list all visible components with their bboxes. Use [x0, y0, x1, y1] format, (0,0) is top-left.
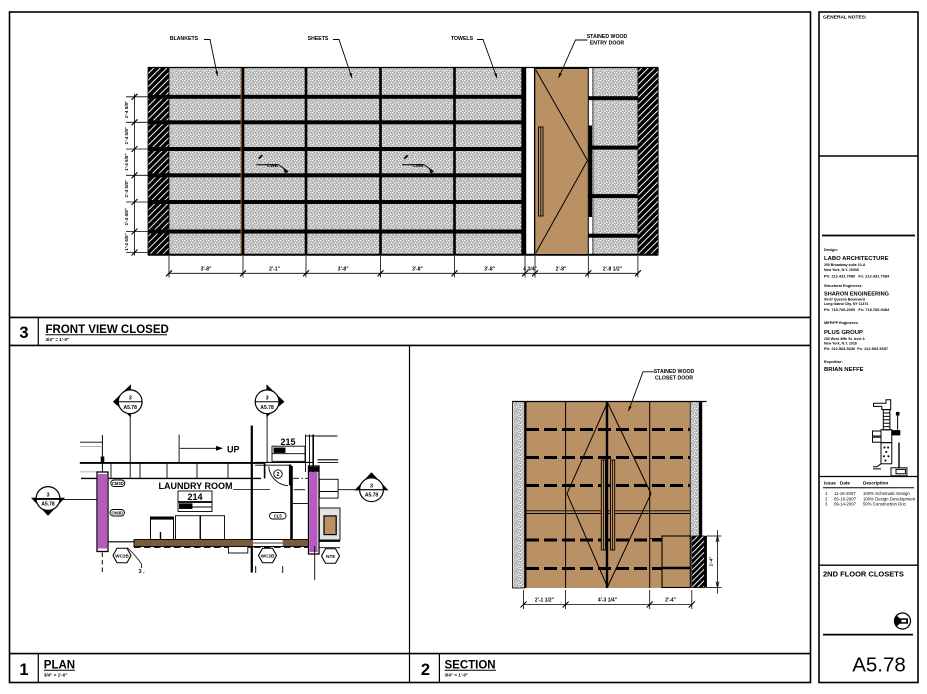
svg-text:CM3D: CM3D [112, 481, 124, 486]
svg-text:Date: Date [840, 481, 850, 486]
svg-text:CWB: CWB [267, 163, 279, 168]
svg-text:3'-8": 3'-8" [484, 267, 495, 273]
svg-text:Issue: Issue [824, 481, 836, 486]
svg-text:Ph: 212.563.5330 Fx: 212.563.: Ph: 212.563.5330 Fx: 212.563.5357 [824, 346, 888, 351]
svg-text:1: 1 [19, 661, 28, 679]
svg-text:4'-3 1/4": 4'-3 1/4" [598, 597, 618, 603]
svg-text:Expeditor:: Expeditor: [824, 360, 843, 364]
svg-text:WC2B: WC2B [261, 553, 275, 558]
svg-text:3: 3 [266, 396, 269, 402]
svg-text:ENTRY DOOR: ENTRY DOOR [590, 41, 625, 47]
svg-text:Ph: 212.431.7080 Fx: 212.431: Ph: 212.431.7080 Fx: 212.431.7084 [824, 274, 890, 279]
svg-text:MEP/FP Engineers:: MEP/FP Engineers: [824, 321, 859, 325]
svg-text:11-16-2007: 11-16-2007 [834, 491, 856, 496]
svg-text:2ND FLOOR CLOSETS: 2ND FLOOR CLOSETS [823, 570, 904, 579]
svg-text:3 .: 3 . [139, 569, 146, 575]
svg-text:3: 3 [19, 324, 28, 342]
svg-text:2'-4": 2'-4" [665, 597, 676, 603]
svg-text:CL5: CL5 [274, 513, 283, 518]
svg-text:2: 2 [421, 661, 430, 679]
svg-text:1'-4 5/8": 1'-4 5/8" [124, 208, 129, 226]
svg-text:3: 3 [129, 396, 132, 402]
svg-text:50% Construction Doc.: 50% Construction Doc. [863, 502, 907, 507]
svg-text:05-15-2007: 05-15-2007 [834, 496, 857, 501]
svg-text:A5.78: A5.78 [41, 502, 55, 508]
svg-text:CWB: CWB [413, 163, 425, 168]
svg-text:Long Island City, NY 11374: Long Island City, NY 11374 [824, 302, 868, 306]
svg-text:SECTION: SECTION [445, 660, 496, 672]
svg-text:SHEETS: SHEETS [308, 36, 329, 42]
svg-text:93-37 Queens Boulevard: 93-37 Queens Boulevard [824, 298, 865, 302]
svg-text:2'-8 1/2": 2'-8 1/2" [603, 267, 623, 273]
svg-text:WC2B: WC2B [115, 553, 129, 558]
svg-text:GENERAL NOTES:: GENERAL NOTES: [823, 15, 867, 21]
svg-text:2'-8": 2'-8" [556, 267, 567, 273]
svg-text:1'-4 5/8": 1'-4 5/8" [124, 153, 129, 171]
svg-text:1: 1 [825, 491, 828, 496]
svg-text:1'-4": 1'-4" [709, 557, 714, 567]
svg-text:New York, N.Y. 1018: New York, N.Y. 1018 [824, 342, 857, 346]
svg-text:TOWELS: TOWELS [451, 36, 474, 42]
svg-text:PLAN: PLAN [44, 660, 75, 672]
svg-text:FRONT VIEW CLOSED: FRONT VIEW CLOSED [46, 324, 169, 336]
svg-text:100% Design Development: 100% Design Development [863, 496, 916, 501]
svg-text:Design:: Design: [824, 248, 838, 252]
svg-text:4 3/4": 4 3/4" [523, 267, 537, 273]
svg-text:3: 3 [825, 502, 828, 507]
svg-text:A5.78: A5.78 [124, 405, 138, 411]
svg-text:2: 2 [825, 496, 828, 501]
svg-text:STAINED WOOD: STAINED WOOD [587, 34, 628, 40]
svg-text:Structural Engineers:: Structural Engineers: [824, 284, 863, 288]
svg-text:CLOSET DOOR: CLOSET DOOR [655, 376, 693, 382]
svg-text:2: 2 [277, 472, 280, 478]
svg-text:BRIAN NEFFE: BRIAN NEFFE [824, 367, 864, 373]
svg-text:3/4" = 1'-0": 3/4" = 1'-0" [445, 673, 469, 678]
svg-text:3'-8": 3'-8" [338, 267, 349, 273]
svg-text:NT8: NT8 [326, 554, 335, 559]
svg-text:215: 215 [280, 437, 295, 447]
svg-text:Ph: 718.706.2000 Fx: 718.706: Ph: 718.706.2000 Fx: 718.706.9484 [824, 307, 890, 312]
svg-text:A5.78: A5.78 [852, 654, 906, 677]
svg-text:200 West 39th St. level 3.: 200 West 39th St. level 3. [824, 337, 865, 341]
svg-text:3: 3 [47, 492, 50, 498]
svg-text:LABO ARCHITECTURE: LABO ARCHITECTURE [824, 256, 889, 262]
svg-text:CM3D: CM3D [111, 510, 123, 515]
svg-text:LAUNDRY ROOM: LAUNDRY ROOM [159, 481, 233, 491]
svg-text:PLUS GROUP: PLUS GROUP [824, 330, 863, 336]
svg-text:1'-4 5/8": 1'-4 5/8" [124, 101, 129, 119]
svg-text:100% Schematic Design: 100% Schematic Design [863, 491, 910, 496]
svg-text:3'-8": 3'-8" [201, 267, 212, 273]
svg-text:2'-1 1/2": 2'-1 1/2" [535, 597, 555, 603]
svg-text:1'-4 5/8": 1'-4 5/8" [124, 127, 129, 145]
svg-text:STAINED WOOD: STAINED WOOD [654, 369, 695, 375]
svg-text:214: 214 [187, 492, 202, 502]
svg-text:Description: Description [863, 481, 888, 486]
svg-text:BLANKETS: BLANKETS [170, 36, 199, 42]
svg-text:3/4" = 1'-0": 3/4" = 1'-0" [44, 673, 68, 678]
svg-text:UP: UP [227, 445, 240, 455]
svg-text:2'-1": 2'-1" [269, 267, 280, 273]
svg-text:3'-8": 3'-8" [412, 267, 423, 273]
svg-text:200 Broadway suite 10-A: 200 Broadway suite 10-A [824, 263, 866, 267]
svg-text:3/4" = 1'-0": 3/4" = 1'-0" [46, 337, 70, 342]
svg-text:New York, N.Y. 10038: New York, N.Y. 10038 [824, 268, 859, 272]
svg-text:A5.78: A5.78 [260, 405, 274, 411]
svg-text:1'-4 5/8": 1'-4 5/8" [124, 180, 129, 198]
svg-text:09-14-2007: 09-14-2007 [834, 502, 857, 507]
svg-text:3: 3 [370, 484, 373, 490]
svg-text:1'-4 5/8": 1'-4 5/8" [124, 233, 129, 251]
svg-text:A5.78: A5.78 [365, 493, 379, 499]
